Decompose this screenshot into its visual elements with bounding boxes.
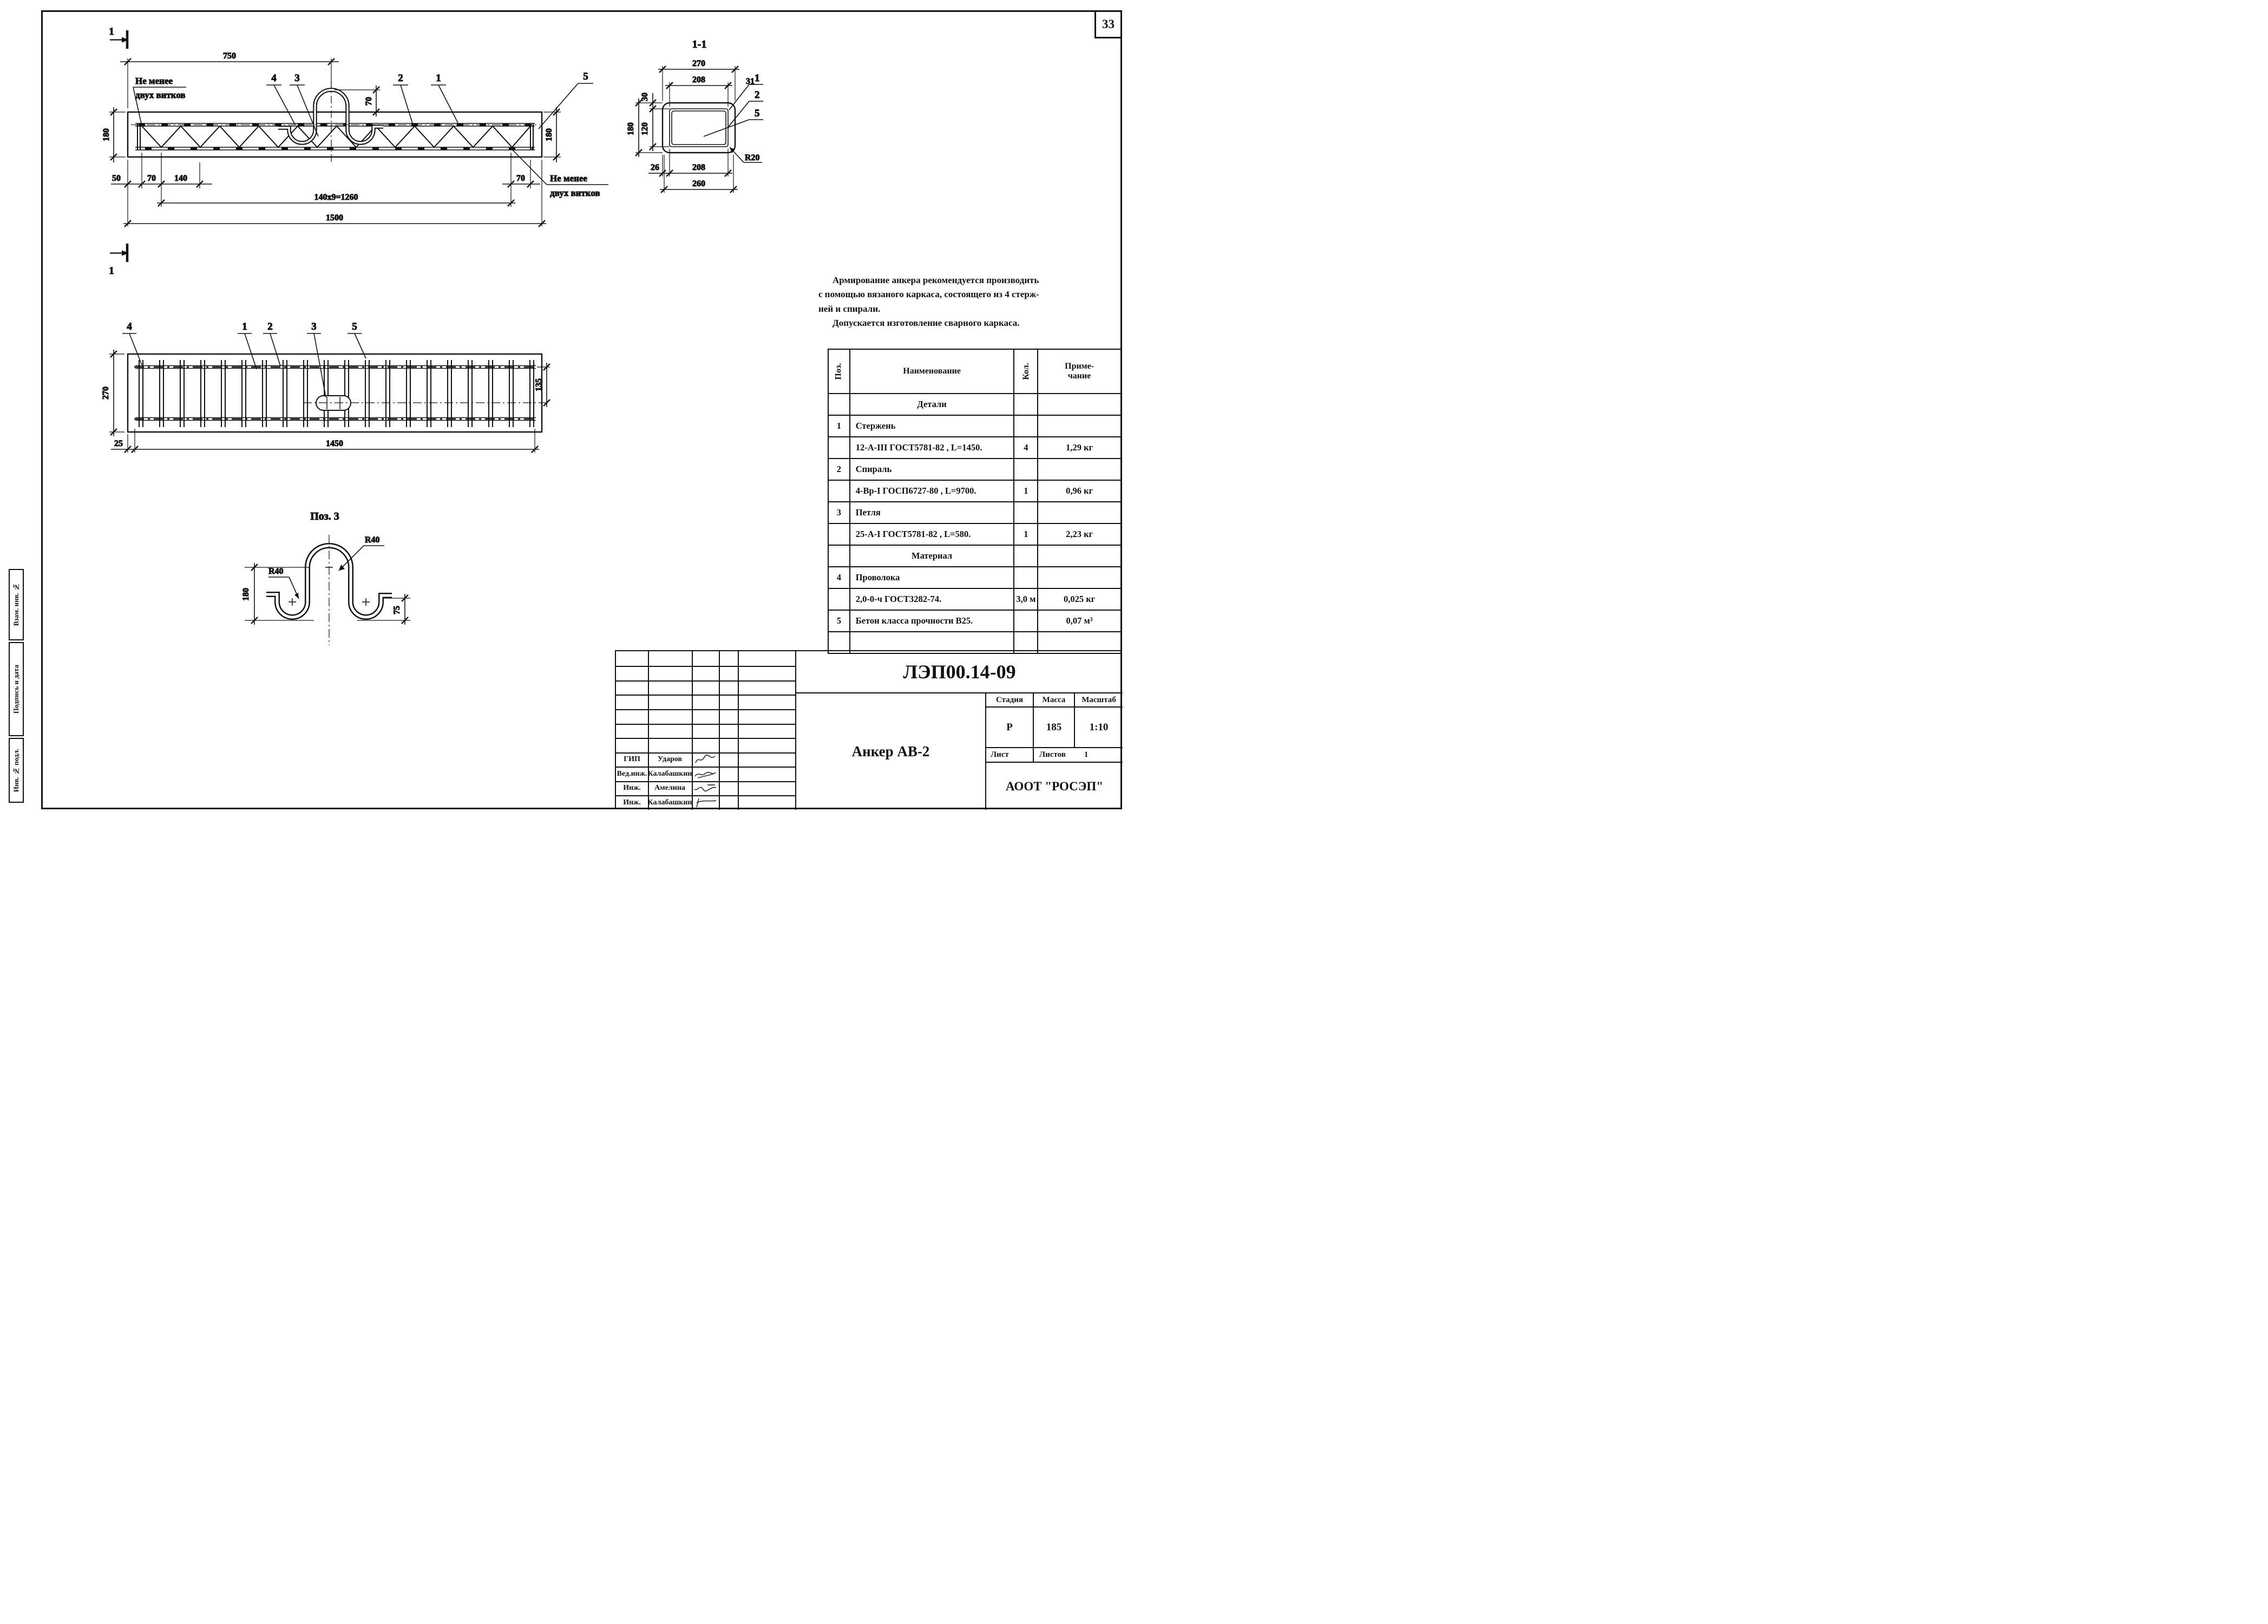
spec-row: 2,0-0-ч ГОСТ3282-74. 3,0 м 0,025 кг [829,588,1120,610]
plan-callout-3: 3 [311,321,317,332]
dim-1260: 140x9=1260 [314,193,358,202]
section-callout-5: 5 [755,108,760,119]
dim-70-loop: 70 [364,97,373,106]
sig-name: Амелина [648,781,692,795]
scale-value: 1:10 [1074,706,1123,747]
dim-1500: 1500 [326,213,343,222]
stage-label: Стадия [985,692,1033,706]
spec-header-name: Наименование [849,350,1014,393]
sig-role: Инж. [616,795,648,810]
dim-270-plan: 270 [101,387,110,400]
doc-number: ЛЭП00.14-09 [795,651,1123,692]
callout-4: 4 [271,73,277,84]
drawing-sheet: 33 Взам. инв. № Подпись и дата Инв. № по… [0,0,1134,812]
dim-r40-left: R40 [268,567,284,576]
plan-callout-4: 4 [127,321,132,332]
dim-r40-top: R40 [365,535,380,545]
section-callout-1: 1 [755,73,760,84]
spec-header-row: Поз. Наименование Кол. Приме-чание [829,350,1120,393]
plan-loop [303,396,549,410]
sheets-cell: Листов 1 [1033,747,1123,762]
mass-value: 185 [1033,706,1074,747]
dim-26: 26 [651,163,659,172]
spec-row [829,631,1120,653]
spec-row: 4 Проволока [829,566,1120,588]
dim-750: 750 [223,51,236,61]
dim-270: 270 [692,59,705,68]
notes-paragraph: Армирование анкера рекомендуется произво… [818,273,1134,330]
section-view: 1-1 [626,38,763,193]
spec-table: Поз. Наименование Кол. Приме-чание Детал… [828,349,1122,654]
plan-rails [135,366,536,421]
signature [692,781,719,795]
callout-3: 3 [294,73,300,84]
dim-180-right: 180 [545,128,554,141]
dim-31: 31 [746,77,755,86]
callout-2: 2 [398,73,403,84]
dim-180-detail: 180 [241,588,251,601]
callout-5: 5 [583,71,588,82]
sig-role: Вед.инж. [616,767,648,781]
note-right-line2: двух витков [550,188,600,198]
scale-label: Масштаб [1074,692,1123,706]
spec-row: 2 Спираль [829,458,1120,480]
plan-view: 4 1 2 3 5 270 135 25 1450 [101,321,550,453]
section-cut-marks [110,30,129,262]
dim-208-bottom: 208 [692,163,705,172]
dim-75: 75 [392,606,402,614]
company-name: АООТ "РОСЭП" [985,762,1123,810]
section-callout-2: 2 [755,89,760,101]
sig-name: Калабашкин [648,795,692,810]
spec-row: 1 Стержень [829,415,1120,436]
dim-140: 140 [174,174,187,183]
dim-120: 120 [640,122,650,135]
section-title: 1-1 [692,38,707,50]
callout-1: 1 [436,73,441,84]
spec-row: 25-А-I ГОСТ5781-82 , L=580. 1 2,23 кг [829,523,1120,545]
sheets-label: Листов [1039,750,1066,759]
spec-row: 12-А-III ГОСТ5781-82 , L=1450. 4 1,29 кг [829,436,1120,458]
spec-row: 5 Бетон класса прочности В25. 0,07 м³ [829,610,1120,631]
note-line: Армирование анкера рекомендуется произво… [818,273,1134,287]
dim-180-section: 180 [626,122,635,135]
plan-callout-2: 2 [267,321,273,332]
plan-callout-1: 1 [242,321,247,332]
note-left-line1: Не менее [135,76,173,86]
sheet-label: Лист [985,747,1033,762]
note-left-line2: двух витков [135,90,186,100]
sig-name: Калабашкин [648,767,692,781]
detail-view: Поз. 3 [241,510,410,645]
spec-row: Материал [829,545,1120,566]
dim-260: 260 [692,179,705,188]
side-view: 1 1 750 70 180 180 50 70 140 70 140x9=12… [102,26,608,277]
section-extension-lines [635,66,735,193]
spec-header-note: Приме-чание [1037,350,1120,393]
dim-30: 30 [640,93,650,101]
sig-name: Ударов [648,752,692,767]
signature [692,752,719,767]
cage-truss [137,123,533,150]
dim-50: 50 [112,174,121,183]
section-concrete [663,103,735,153]
section-mark-label-top: 1 [109,26,114,37]
drawing-title: Анкер АВ-2 [795,692,985,810]
spec-row: 4-Вр-I ГОСП6727-80 , L=9700. 1 0,96 кг [829,480,1120,501]
sig-role: Инж. [616,781,648,795]
dim-25: 25 [114,439,123,448]
spec-header-pos: Поз. [829,350,849,393]
signature [692,795,719,810]
spec-row: 3 Петля [829,501,1120,523]
section-rebar-inner [672,111,726,145]
spec-header-qty: Кол. [1013,350,1037,393]
signature [692,767,719,781]
note-line: ней и спирали. [818,302,1134,316]
note-right-line1: Не менее [550,173,587,184]
stage-value: Р [985,706,1033,747]
dim-1450: 1450 [326,439,343,448]
sig-role: ГИП [616,752,648,767]
detail-radius-leaders [268,546,384,599]
dim-208-top: 208 [692,75,705,84]
spec-row: Детали [829,393,1120,415]
mass-label: Масса [1033,692,1074,706]
dim-180-left: 180 [102,128,111,141]
dim-70-left: 70 [147,174,156,183]
note-line: с помощью вязаного каркаса, состоящего и… [818,287,1134,302]
section-mark-label-bottom: 1 [109,265,114,277]
section-rebar-outer [670,109,728,147]
title-block: ГИП Ударов Вед.инж. Калабашкин Инж. Амел… [615,650,1122,809]
dim-r20: R20 [745,153,760,162]
sheets-value: 1 [1084,750,1089,759]
plan-callout-5: 5 [352,321,357,332]
dim-135: 135 [534,378,543,391]
dim-70-right: 70 [516,174,525,183]
detail-title: Поз. 3 [310,510,339,522]
note-line: Допускается изготовление сварного каркас… [818,316,1134,330]
